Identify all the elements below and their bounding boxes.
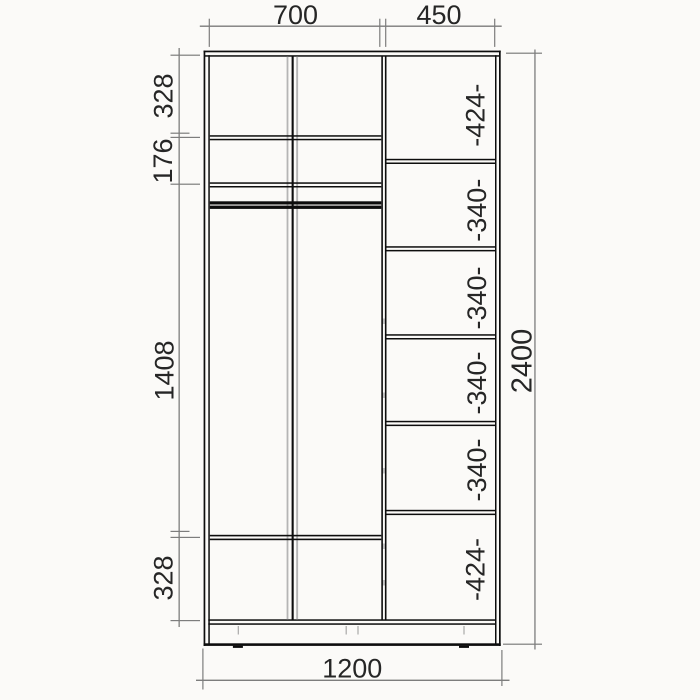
svg-text:-340-: -340-: [462, 351, 492, 414]
svg-text:328: 328: [149, 73, 179, 118]
svg-text:328: 328: [149, 555, 179, 600]
svg-text:-340-: -340-: [462, 179, 492, 242]
svg-text:450: 450: [416, 0, 461, 30]
svg-text:-340-: -340-: [462, 266, 492, 329]
svg-text:2400: 2400: [507, 329, 539, 394]
svg-text:-424-: -424-: [461, 84, 491, 147]
svg-text:700: 700: [273, 0, 318, 30]
svg-text:-424-: -424-: [461, 538, 491, 601]
svg-text:1408: 1408: [150, 340, 180, 400]
svg-text:-340-: -340-: [462, 438, 492, 501]
svg-text:176: 176: [148, 138, 178, 183]
svg-text:1200: 1200: [322, 654, 382, 684]
